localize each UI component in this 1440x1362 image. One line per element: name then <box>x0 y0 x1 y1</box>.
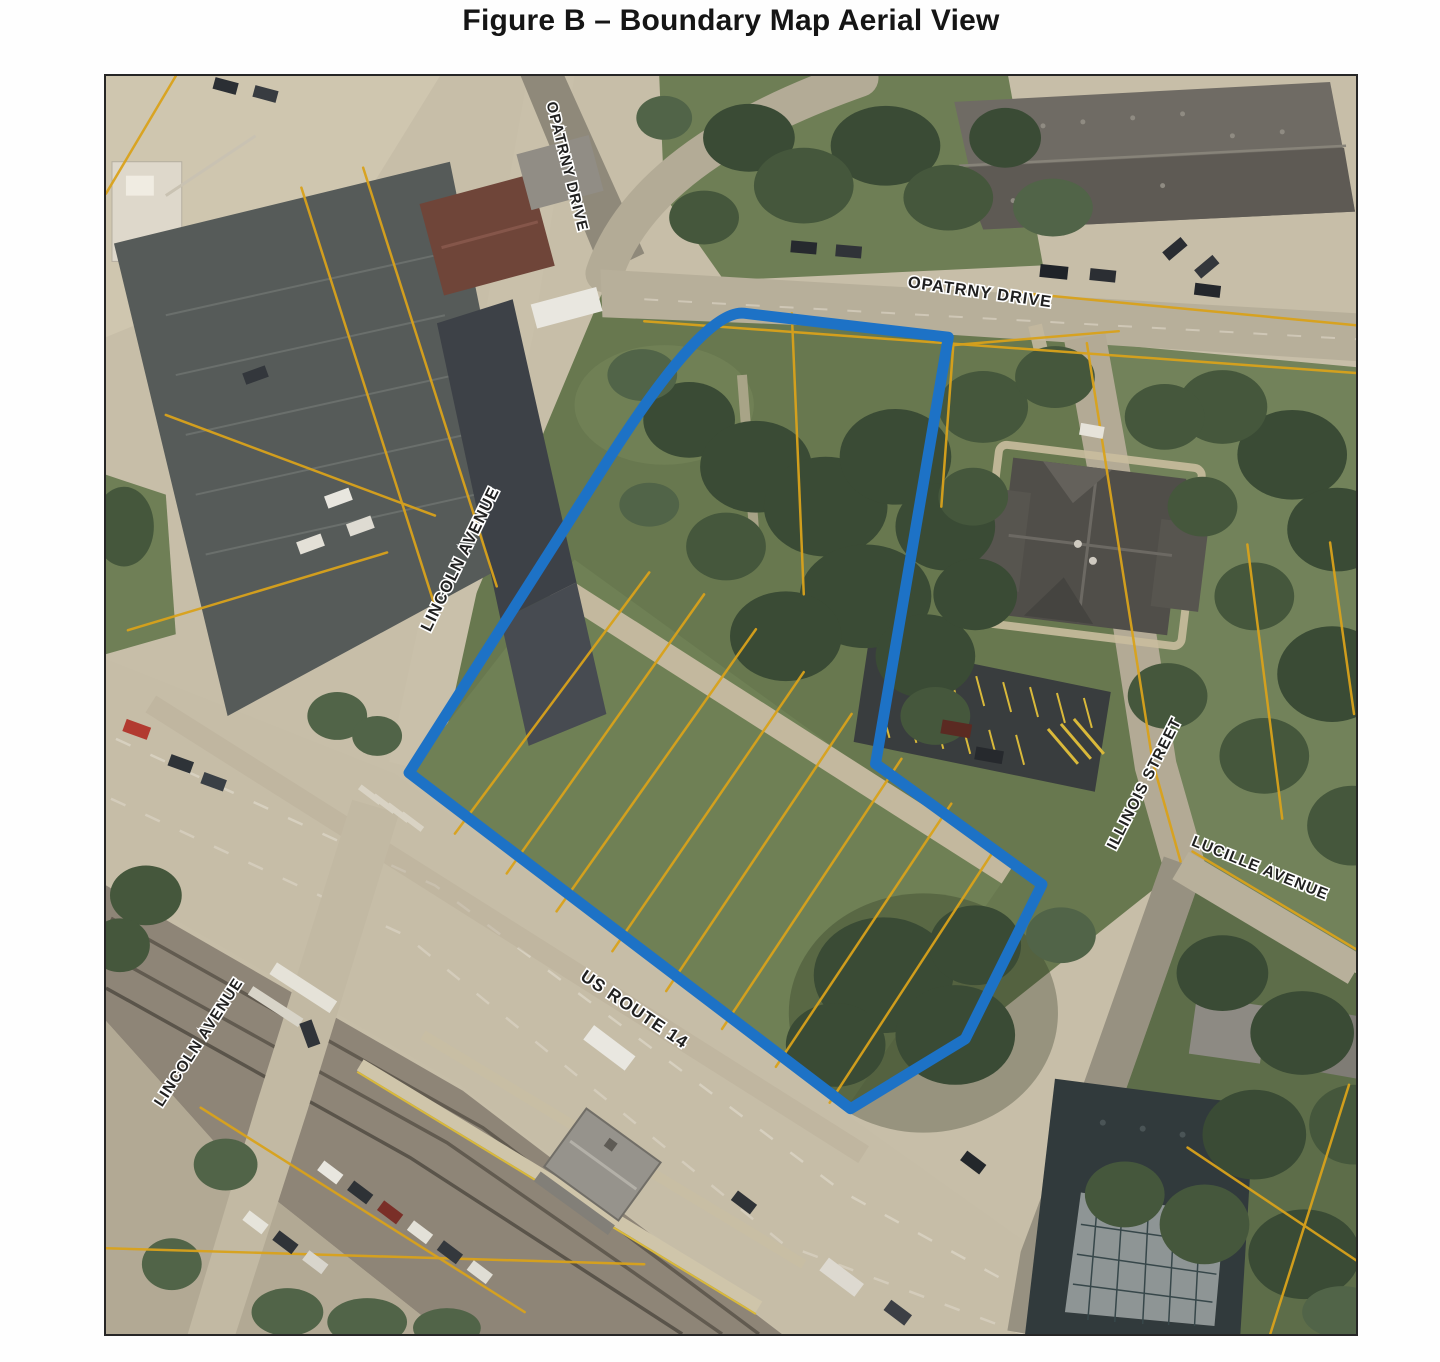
aerial-map-canvas: OPATRNY DRIVE OPATRNY DRIVE LINCOLN AVEN… <box>106 76 1356 1334</box>
figure-title: Figure B – Boundary Map Aerial View <box>104 4 1358 38</box>
document-page: Figure B – Boundary Map Aerial View <box>0 0 1440 1362</box>
map-frame: OPATRNY DRIVE OPATRNY DRIVE LINCOLN AVEN… <box>104 74 1358 1336</box>
